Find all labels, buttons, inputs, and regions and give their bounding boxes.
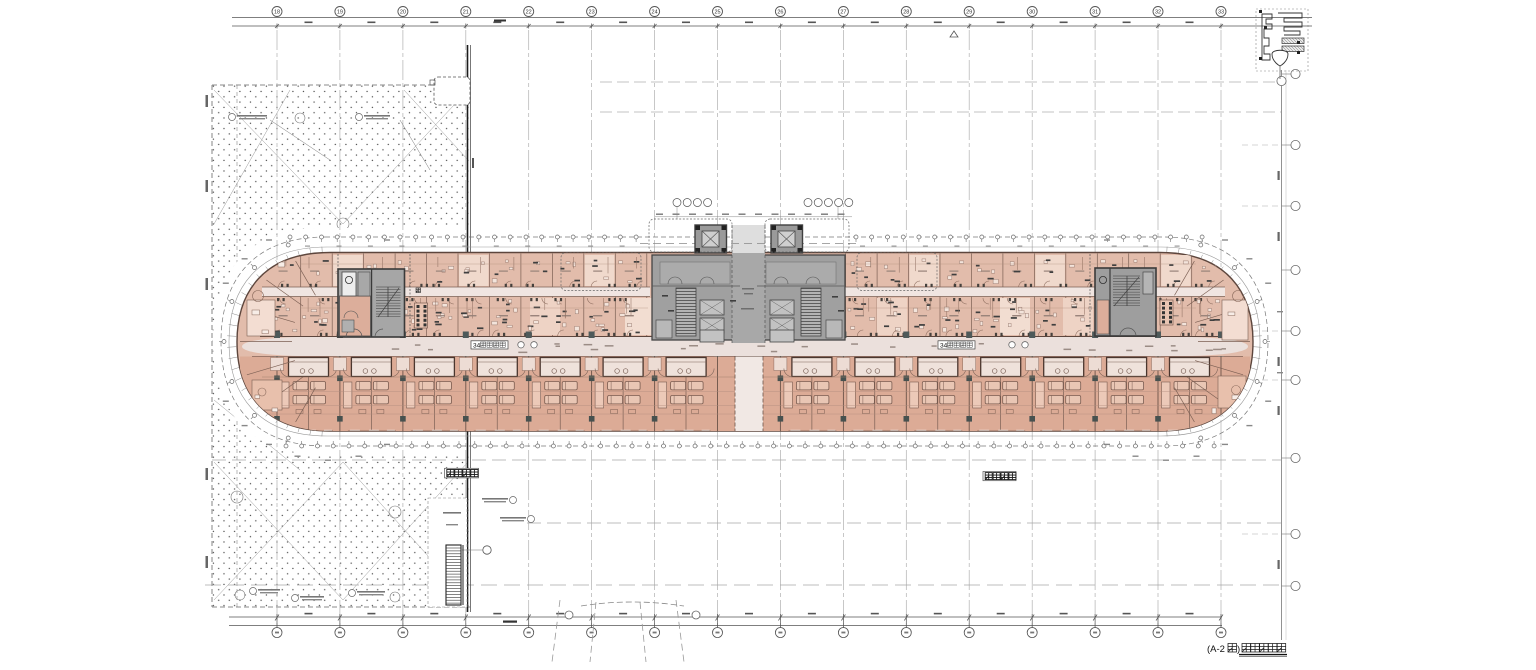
svg-text:22: 22 [526,10,532,16]
svg-text:33: 33 [1218,10,1224,16]
svg-text:21: 21 [463,10,469,16]
svg-text:29: 29 [966,10,972,16]
svg-text:23: 23 [589,10,595,16]
svg-text:25: 25 [714,10,720,16]
svg-text:24: 24 [652,10,658,16]
svg-text:): ) [1237,644,1240,655]
svg-text:26: 26 [777,10,783,16]
svg-text:28: 28 [903,10,909,16]
svg-text:30: 30 [1029,10,1035,16]
svg-text:20: 20 [400,10,406,16]
svg-text:34: 34 [473,343,481,350]
svg-text:34: 34 [940,343,948,350]
svg-text:27: 27 [840,10,846,16]
svg-text:31: 31 [1092,10,1098,16]
svg-text:18: 18 [274,10,280,16]
svg-text:19: 19 [337,10,343,16]
svg-text:(A-2: (A-2 [1207,644,1225,655]
svg-text:32: 32 [1155,10,1161,16]
